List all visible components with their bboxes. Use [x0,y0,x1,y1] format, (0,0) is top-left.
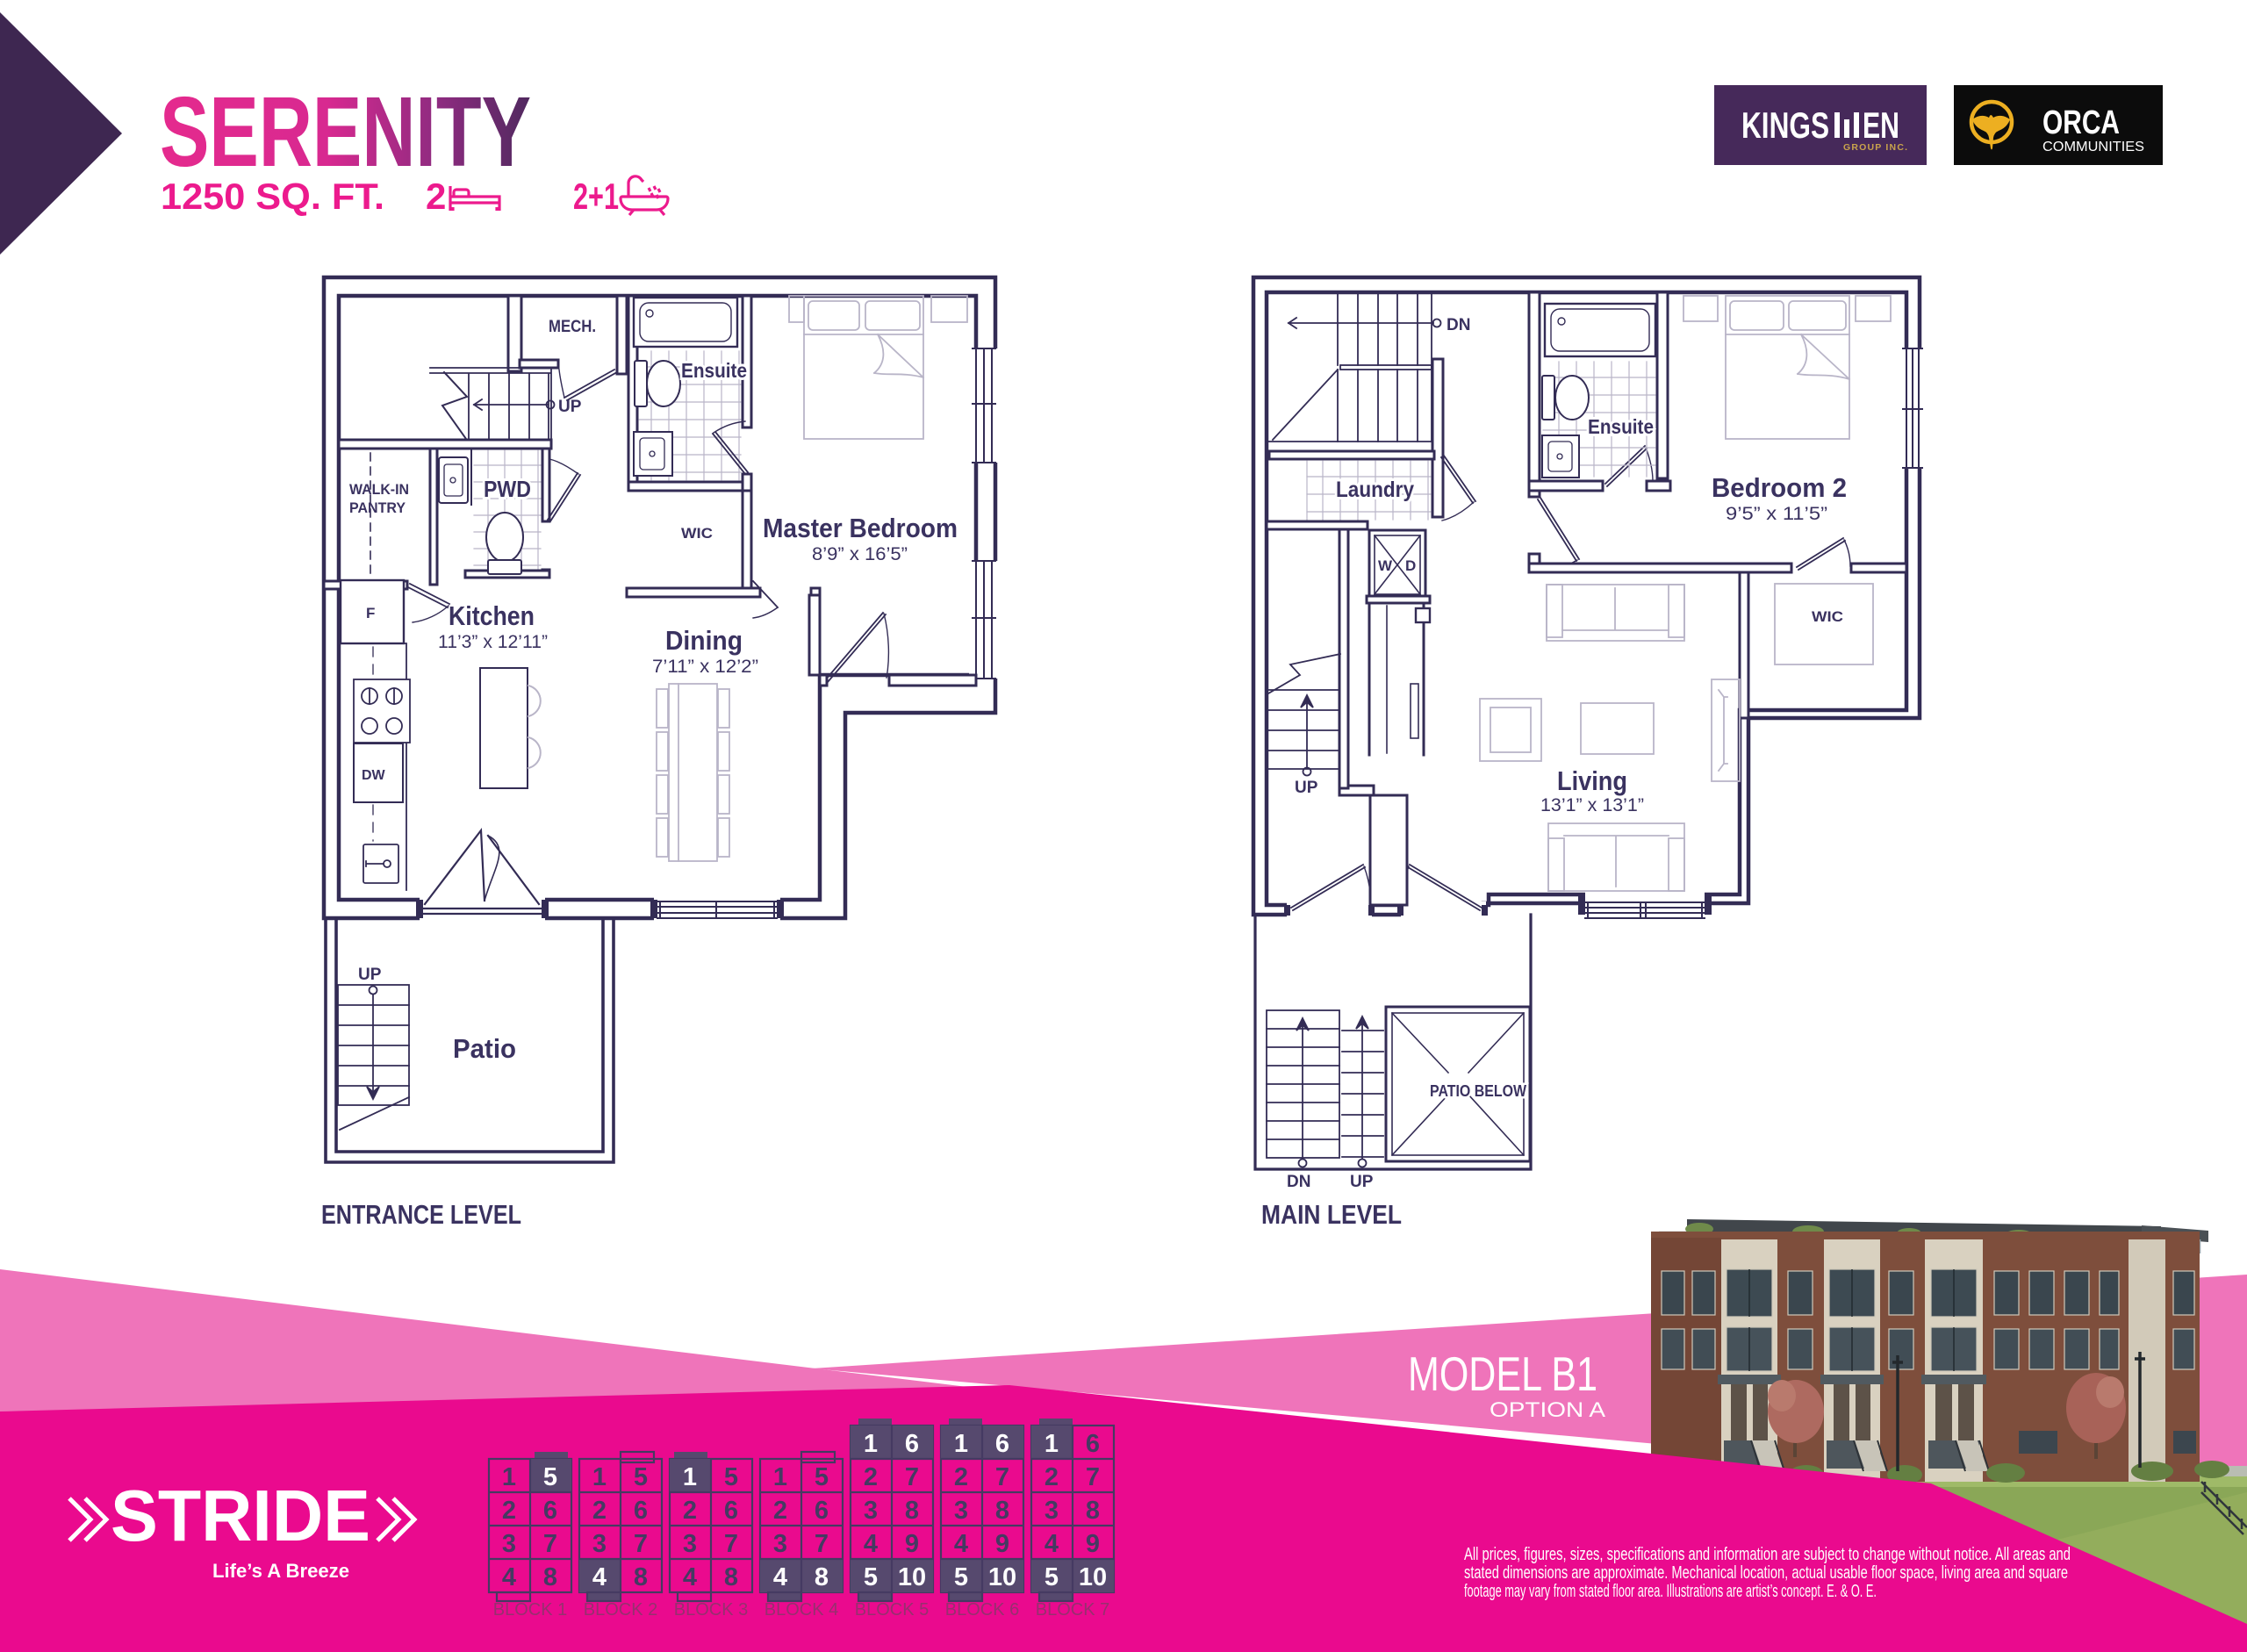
svg-text:UP: UP [1295,779,1318,797]
svg-text:2+1: 2+1 [573,176,619,217]
svg-text:DW: DW [362,768,386,783]
svg-text:1: 1 [683,1463,697,1491]
svg-text:OPTION A: OPTION A [1490,1398,1605,1422]
svg-text:MAIN LEVEL: MAIN LEVEL [1261,1199,1402,1230]
svg-text:5: 5 [543,1463,557,1491]
svg-text:1: 1 [773,1463,787,1491]
svg-text:8’9” x 16’5”: 8’9” x 16’5” [812,544,908,564]
svg-text:7: 7 [543,1530,557,1558]
svg-text:1: 1 [864,1430,878,1458]
svg-text:3: 3 [502,1530,516,1558]
svg-text:BLOCK 4: BLOCK 4 [765,1600,838,1620]
svg-text:10: 10 [1079,1563,1107,1591]
svg-text:footage may vary from stated f: footage may vary from stated floor area.… [1464,1582,1877,1601]
svg-text:7: 7 [1086,1463,1100,1491]
svg-text:2: 2 [592,1497,607,1525]
svg-text:9: 9 [1086,1530,1100,1558]
svg-text:Patio: Patio [453,1033,516,1064]
svg-text:4: 4 [683,1563,697,1591]
svg-text:7: 7 [724,1530,738,1558]
svg-text:BLOCK 7: BLOCK 7 [1036,1600,1109,1620]
svg-text:7’11” x 12’2”: 7’11” x 12’2” [652,657,758,677]
svg-text:8: 8 [724,1563,738,1591]
svg-text:WIC: WIC [1812,608,1843,625]
svg-text:4: 4 [954,1530,968,1558]
svg-text:3: 3 [592,1530,607,1558]
svg-text:8: 8 [543,1563,557,1591]
svg-text:4: 4 [773,1563,787,1591]
svg-text:COMMUNITIES: COMMUNITIES [2042,140,2144,154]
svg-text:UP: UP [358,966,382,984]
svg-text:Laundry: Laundry [1336,478,1414,502]
svg-text:2: 2 [864,1463,878,1491]
svg-text:9: 9 [995,1530,1009,1558]
svg-text:D: D [1405,557,1416,574]
svg-text:2: 2 [502,1497,516,1525]
svg-text:5: 5 [1045,1563,1059,1591]
svg-text:10: 10 [898,1563,926,1591]
svg-text:6: 6 [543,1497,557,1525]
svg-text:8: 8 [634,1563,648,1591]
svg-text:Master Bedroom: Master Bedroom [763,513,958,543]
svg-text:2: 2 [683,1497,697,1525]
svg-text:5: 5 [634,1463,648,1491]
svg-text:MODEL B1: MODEL B1 [1408,1347,1597,1401]
svg-text:7: 7 [995,1463,1009,1491]
svg-text:1: 1 [954,1430,968,1458]
svg-text:8: 8 [905,1497,919,1525]
svg-text:BLOCK 3: BLOCK 3 [674,1600,748,1620]
svg-text:Bedroom 2: Bedroom 2 [1712,472,1847,503]
svg-text:GROUP INC.: GROUP INC. [1843,142,1908,153]
svg-text:3: 3 [864,1497,878,1525]
svg-text:2: 2 [1045,1463,1059,1491]
svg-text:3: 3 [773,1530,787,1558]
svg-text:6: 6 [995,1430,1009,1458]
svg-text:6: 6 [905,1430,919,1458]
svg-text:9’5” x 11’5”: 9’5” x 11’5” [1726,504,1827,524]
svg-text:PWD: PWD [484,476,531,502]
svg-text:2: 2 [773,1497,787,1525]
svg-text:ORCA: ORCA [2042,104,2120,141]
svg-text:DN: DN [1447,316,1470,334]
svg-text:Life’s A Breeze: Life’s A Breeze [212,1560,349,1582]
svg-text:1: 1 [592,1463,607,1491]
svg-text:WIC: WIC [681,525,713,542]
svg-text:8: 8 [815,1563,829,1591]
svg-text:4: 4 [502,1563,516,1591]
svg-text:F: F [366,605,375,621]
svg-text:6: 6 [634,1497,648,1525]
svg-text:5: 5 [864,1563,878,1591]
svg-text:6: 6 [724,1497,738,1525]
svg-text:7: 7 [815,1530,829,1558]
svg-text:KINGS: KINGS [1741,104,1829,146]
svg-text:8: 8 [1086,1497,1100,1525]
svg-text:Ensuite: Ensuite [681,359,747,382]
svg-text:PATIO BELOW: PATIO BELOW [1430,1082,1526,1100]
svg-text:6: 6 [1086,1430,1100,1458]
svg-text:Dining: Dining [665,625,743,656]
svg-text:SERENITY: SERENITY [160,76,531,187]
svg-text:2: 2 [954,1463,968,1491]
svg-text:UP: UP [1350,1173,1374,1191]
svg-text:1250 SQ. FT.: 1250 SQ. FT. [161,176,384,217]
svg-text:4: 4 [1045,1530,1059,1558]
svg-text:7: 7 [634,1530,648,1558]
svg-text:BLOCK 1: BLOCK 1 [493,1600,567,1620]
svg-text:MECH.: MECH. [549,318,596,336]
svg-text:All prices, figures, sizes, sp: All prices, figures, sizes, specificatio… [1464,1545,2071,1564]
svg-text:1: 1 [1045,1430,1059,1458]
svg-text:2: 2 [426,176,446,217]
svg-text:7: 7 [905,1463,919,1491]
svg-text:EN: EN [1863,104,1899,146]
svg-text:UP: UP [558,398,582,416]
svg-text:5: 5 [954,1563,968,1591]
svg-text:Kitchen: Kitchen [449,600,535,631]
svg-text:9: 9 [905,1530,919,1558]
svg-text:5: 5 [815,1463,829,1491]
svg-text:3: 3 [1045,1497,1059,1525]
svg-text:3: 3 [683,1530,697,1558]
svg-text:DN: DN [1287,1173,1310,1191]
svg-text:11’3” x 12’11”: 11’3” x 12’11” [438,632,548,652]
svg-text:WALK-IN: WALK-IN [349,481,409,498]
svg-text:3: 3 [954,1497,968,1525]
svg-text:PANTRY: PANTRY [349,499,406,516]
svg-text:Living: Living [1557,765,1627,796]
svg-text:BLOCK 5: BLOCK 5 [855,1600,929,1620]
svg-text:10: 10 [988,1563,1016,1591]
svg-text:6: 6 [815,1497,829,1525]
svg-text:Ensuite: Ensuite [1588,415,1654,438]
svg-text:4: 4 [592,1563,607,1591]
svg-text:stated dimensions are approxim: stated dimensions are approximate. Mecha… [1464,1563,2068,1583]
svg-text:STRIDE: STRIDE [111,1475,370,1556]
svg-text:BLOCK 2: BLOCK 2 [584,1600,657,1620]
svg-text:ENTRANCE LEVEL: ENTRANCE LEVEL [321,1199,521,1230]
svg-text:W: W [1378,557,1393,574]
svg-text:8: 8 [995,1497,1009,1525]
svg-text:4: 4 [864,1530,878,1558]
svg-text:13’1” x 13’1”: 13’1” x 13’1” [1540,795,1644,815]
svg-text:1: 1 [502,1463,516,1491]
svg-text:5: 5 [724,1463,738,1491]
svg-text:BLOCK 6: BLOCK 6 [945,1600,1019,1620]
